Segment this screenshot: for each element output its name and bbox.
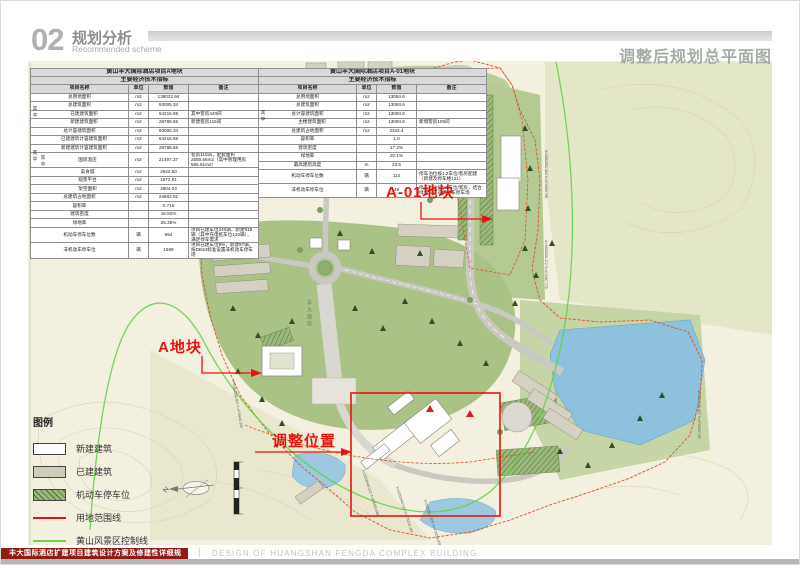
table-row: 新建建筑面积m228788.65新建客房115间 xyxy=(31,119,259,128)
cell-rem xyxy=(189,193,259,202)
legend-item-existing-buildings: 已建建筑 xyxy=(33,460,148,483)
group-label: 其中 xyxy=(260,110,266,123)
cell-rem xyxy=(417,93,487,102)
cell-unit: m2 xyxy=(357,119,377,128)
cell-rem xyxy=(417,144,487,153)
col-header: 项目名称 xyxy=(31,85,129,94)
cell-name: 最高建筑高度 xyxy=(259,161,357,170)
table-row: 绿地率20.1% xyxy=(259,153,487,162)
legend-label: 黄山风景区控制线 xyxy=(76,534,148,547)
cell-unit: m2 xyxy=(129,168,149,177)
col-header: 单位 xyxy=(129,85,149,94)
table-row: 已建建筑计容建筑面积m264216.69 xyxy=(31,136,259,145)
table-row: 机动车停车位数辆954项目已建车位240辆、新建915辆（其中充电桩车位120辆… xyxy=(31,227,259,242)
cell-rem xyxy=(189,93,259,102)
legend-label: 机动车停车位 xyxy=(76,488,130,501)
cell-unit: m2 xyxy=(357,93,377,102)
table-row: 总建筑占地面积m22344.4 xyxy=(259,127,487,136)
table-row: 美食城m22942.50 xyxy=(31,168,259,177)
cell-val: 28788.65 xyxy=(149,119,189,128)
table-row: 总用地面积m2138022.94 xyxy=(31,93,259,102)
cell-unit: 辆 xyxy=(129,227,149,242)
cell-val: 1672.91 xyxy=(149,176,189,185)
cell-unit: m2 xyxy=(129,136,149,145)
table-row: 容积率1.0 xyxy=(259,136,487,145)
cell-unit: m2 xyxy=(129,119,149,128)
legend-label: 已建建筑 xyxy=(76,465,112,478)
table-b-title-2: 主要经济技术指标 xyxy=(259,77,487,85)
table-row: 最高建筑高度m23.5 xyxy=(259,161,487,170)
cell-name: 总建筑占地面积 xyxy=(31,193,129,202)
cell-rem xyxy=(417,161,487,170)
cell-name: 总用地面积 xyxy=(259,93,357,102)
cell-name: 机动车停车位数 xyxy=(31,227,129,242)
table-row: 总计容建筑面积m293005.34 xyxy=(31,127,259,136)
table-row: 绿地率25.35% xyxy=(31,219,259,228)
cell-name: 建筑密度 xyxy=(31,210,129,219)
legend-title: 图例 xyxy=(33,414,148,429)
red-line-swatch xyxy=(33,517,66,519)
cell-rem xyxy=(417,102,487,111)
table-row: 建筑密度17.2% xyxy=(259,144,487,153)
coord-label: X=3352552.116 Y=474480.780 xyxy=(544,150,548,198)
footer-divider: | xyxy=(198,547,201,558)
axis-road-label: 丰大国际 xyxy=(306,299,312,328)
cell-name: 总计容建筑面积 xyxy=(259,110,357,119)
cell-val: 1589 xyxy=(149,243,189,258)
cell-name: 新建建筑面积 xyxy=(31,119,129,128)
table-row: 观景平台m21672.91 xyxy=(31,176,259,185)
cell-name: 建筑密度 xyxy=(259,144,357,153)
cell-rem xyxy=(189,210,259,219)
table-row: 国际酒店m221497.37客房115间，配套面积2550.56m2（其中管理用… xyxy=(31,153,259,168)
table-b-title-1: 黄山丰大国际酒店项目A-01地块 xyxy=(259,69,487,77)
cell-unit: m2 xyxy=(129,144,149,153)
courtyard-building xyxy=(262,346,302,376)
label-plot-a01: A-01地块 xyxy=(386,181,455,202)
cell-val: 93005.34 xyxy=(149,102,189,111)
label-adjust-position: 调整位置 xyxy=(272,430,336,451)
table-a-title-1: 黄山丰大国际酒店项目A地块 xyxy=(31,69,259,77)
round-plaza xyxy=(502,402,532,432)
cell-name: 机动车停车位数 xyxy=(259,170,357,184)
table-row: 主楼建筑面积m213093.6新增客房105间 xyxy=(259,119,487,128)
col-header: 备注 xyxy=(417,85,487,94)
cell-val: 13084.6 xyxy=(377,93,417,102)
cell-val: 64216.69 xyxy=(149,110,189,119)
cell-unit: m2 xyxy=(129,102,149,111)
cell-val: 954 xyxy=(149,227,189,242)
cell-val: 13093.6 xyxy=(377,110,417,119)
cell-unit: m2 xyxy=(357,127,377,136)
cell-val: 24602.91 xyxy=(149,193,189,202)
cell-name: 总计容建筑面积 xyxy=(31,127,129,136)
table-row: 架空面积m22604.03 xyxy=(31,185,259,194)
table-row: 总建筑占地面积m224602.91 xyxy=(31,193,259,202)
cell-rem xyxy=(189,219,259,228)
cell-name: 观景平台 xyxy=(31,176,129,185)
cell-val: 2344.4 xyxy=(377,127,417,136)
cell-rem: 项目已建车位240辆、新建915辆（其中充电桩车位120辆），满足停车需求 xyxy=(189,227,259,242)
cell-unit xyxy=(129,210,149,219)
cell-val: 93005.34 xyxy=(149,127,189,136)
table-row: 总计容建筑面积m213093.6 xyxy=(259,110,487,119)
cell-val: 28788.65 xyxy=(149,144,189,153)
table-row: 总建筑面积m213093.6 xyxy=(259,102,487,111)
cell-rem xyxy=(189,176,259,185)
existing-building-swatch xyxy=(33,466,66,478)
section-number: 02 xyxy=(31,22,63,58)
col-header: 项目名称 xyxy=(259,85,357,94)
label-plot-a: A地块 xyxy=(158,336,202,357)
cell-name: 新建建筑计容建筑面积 xyxy=(31,144,129,153)
cell-val: 20.1% xyxy=(377,153,417,162)
cell-rem xyxy=(189,168,259,177)
cell-unit: m2 xyxy=(357,102,377,111)
col-header: 单位 xyxy=(357,85,377,94)
cell-rem xyxy=(189,136,259,145)
cell-unit: m2 xyxy=(129,110,149,119)
table-row: 建筑密度18.92% xyxy=(31,210,259,219)
cell-name: 已建建筑计容建筑面积 xyxy=(31,136,129,145)
footer-title-en: DESIGN OF HUANGSHAN FENGDA COMPLEX BUILD… xyxy=(212,549,477,558)
section-subtitle: Recommended scheme xyxy=(72,44,162,54)
cell-val: 23.5 xyxy=(377,161,417,170)
cell-unit xyxy=(357,153,377,162)
cell-name: 容积率 xyxy=(259,136,357,145)
legend-item-new-buildings: 新建建筑 xyxy=(33,437,148,460)
cell-name: 总用地面积 xyxy=(31,93,129,102)
cell-val: 0.715 xyxy=(149,202,189,211)
cell-rem xyxy=(417,110,487,119)
green-line-swatch xyxy=(33,540,66,542)
indicator-table-plot-a01: 黄山丰大国际酒店项目A-01地块 主要经济技术指标 项目名称 单位 数值 备注 … xyxy=(258,68,487,198)
group-label: 其中 xyxy=(32,150,38,163)
coord-label: X=3352508.172 Y=474487.770 xyxy=(544,240,548,289)
cell-val: 13093.6 xyxy=(377,119,417,128)
new-building-swatch xyxy=(33,443,66,455)
cell-val: 64216.69 xyxy=(149,136,189,145)
cell-rem: 其中客房440间 xyxy=(189,110,259,119)
table-row: 总建筑面积m293005.34 xyxy=(31,102,259,111)
table-row: 非机动车停车位辆1589项目已建车位9%，新建97辆，按DB34标准设置非机动车… xyxy=(31,243,259,258)
cell-val: 2604.03 xyxy=(149,185,189,194)
cell-name: 总建筑面积 xyxy=(259,102,357,111)
page-title: 调整后规划总平面图 xyxy=(619,43,772,67)
cell-unit: 辆 xyxy=(129,243,149,258)
cell-name: 绿地率 xyxy=(259,153,357,162)
table-a-title-2: 主要经济技术指标 xyxy=(31,77,259,85)
cell-name: 美食城 xyxy=(31,168,129,177)
cell-rem: 客房115间，配套面积2550.56m2（其中管理用房586.61m2） xyxy=(189,153,259,168)
cell-unit: m2 xyxy=(129,185,149,194)
cell-name: 容积率 xyxy=(31,202,129,211)
indicator-table-plot-a: 黄山丰大国际酒店项目A地块 主要经济技术指标 项目名称 单位 数值 备注 总用地… xyxy=(30,68,259,259)
cell-name: 非机动车停车位 xyxy=(31,243,129,258)
cell-unit: m2 xyxy=(129,153,149,168)
cell-rem xyxy=(189,144,259,153)
legend: 图例 新建建筑 已建建筑 机动车停车位 用地范围线 黄山风景区控制线 xyxy=(33,414,148,552)
cell-name: 总建筑面积 xyxy=(31,102,129,111)
group-label: 其中 xyxy=(40,155,46,168)
cell-rem xyxy=(417,136,487,145)
cell-unit: 辆 xyxy=(357,184,377,198)
table-row: 新建建筑计容建筑面积m228788.65 xyxy=(31,144,259,153)
parking-swatch xyxy=(33,489,66,501)
cell-name: 架空面积 xyxy=(31,185,129,194)
cell-val: 1.0 xyxy=(377,136,417,145)
table-a-header-row: 项目名称 单位 数值 备注 xyxy=(31,85,259,94)
table-row: 容积率0.715 xyxy=(31,202,259,211)
cell-val: 21497.37 xyxy=(149,153,189,168)
cell-val: 138022.94 xyxy=(149,93,189,102)
cell-unit: m2 xyxy=(129,176,149,185)
table-b-header-row: 项目名称 单位 数值 备注 xyxy=(259,85,487,94)
cell-unit: m2 xyxy=(129,93,149,102)
cell-val: 13093.6 xyxy=(377,102,417,111)
cell-unit: m2 xyxy=(357,110,377,119)
cell-val: 25.35% xyxy=(149,219,189,228)
cell-val: 2942.50 xyxy=(149,168,189,177)
cell-unit: m2 xyxy=(129,127,149,136)
col-header: 备注 xyxy=(189,85,259,94)
cell-unit xyxy=(357,136,377,145)
col-header: 数值 xyxy=(149,85,189,94)
cell-unit xyxy=(129,219,149,228)
cell-unit: 辆 xyxy=(357,170,377,184)
cell-rem xyxy=(189,202,259,211)
cell-rem xyxy=(189,127,259,136)
table-a-body: 总用地面积m2138022.94总建筑面积m293005.34已建建筑面积m26… xyxy=(31,93,259,258)
table-row: 总用地面积m213084.6 xyxy=(259,93,487,102)
cell-rem: 项目已建车位9%，新建97辆，按DB34标准设置非机动车停车场 xyxy=(189,243,259,258)
legend-item-landuse-line: 用地范围线 xyxy=(33,506,148,529)
table-row: 已建建筑面积m264216.69其中客房440间 xyxy=(31,110,259,119)
cell-name: 绿地率 xyxy=(31,219,129,228)
cell-name: 非机动车停车位 xyxy=(259,184,357,198)
coord-label: X=3352485.827 Y=474533.705 xyxy=(697,390,701,439)
cell-rem xyxy=(189,185,259,194)
cell-rem xyxy=(417,153,487,162)
cell-rem: 新增客房105间 xyxy=(417,119,487,128)
cell-name: 主楼建筑面积 xyxy=(259,119,357,128)
cell-rem xyxy=(189,102,259,111)
cell-name: 总建筑占地面积 xyxy=(259,127,357,136)
cell-name: 已建建筑面积 xyxy=(31,110,129,119)
legend-label: 用地范围线 xyxy=(76,511,121,524)
cell-unit xyxy=(357,144,377,153)
cell-unit: m2 xyxy=(129,193,149,202)
legend-label: 新建建筑 xyxy=(76,442,112,455)
cell-unit xyxy=(129,202,149,211)
footer-strip xyxy=(0,559,800,565)
group-label: 其中 xyxy=(32,106,38,119)
cell-rem: 新建客房115间 xyxy=(189,119,259,128)
col-header: 数值 xyxy=(377,85,417,94)
cell-unit: m xyxy=(357,161,377,170)
footer-title-cn: 丰大国际酒店扩建项目建筑设计方案及修建性详细规划 xyxy=(0,548,188,559)
cell-val: 17.2% xyxy=(377,144,417,153)
header-bar xyxy=(148,31,772,41)
cell-rem xyxy=(417,127,487,136)
cell-val: 18.92% xyxy=(149,210,189,219)
legend-item-parking: 机动车停车位 xyxy=(33,483,148,506)
